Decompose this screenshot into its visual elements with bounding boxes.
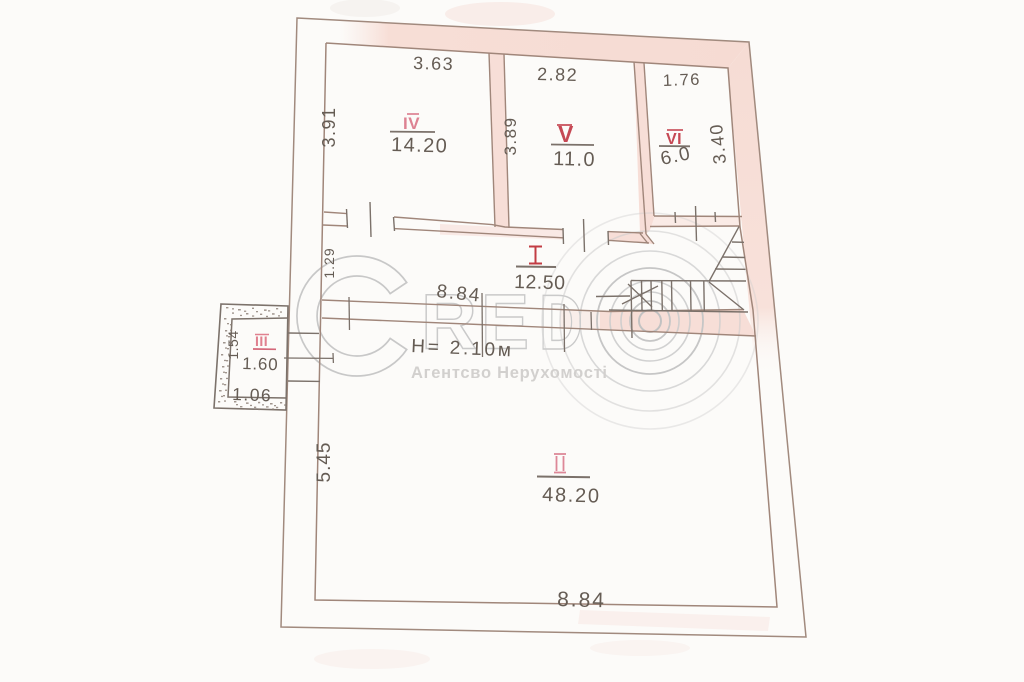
svg-text:14.20: 14.20 [391,134,449,157]
svg-text:3.63: 3.63 [413,53,455,74]
svg-text:1.29: 1.29 [321,247,337,278]
svg-text:Агентсво Нерухомості: Агентсво Нерухомості [411,364,607,382]
svg-text:1.60: 1.60 [242,354,279,374]
svg-text:III: III [255,333,268,349]
svg-text:1.54: 1.54 [225,330,241,359]
svg-text:12.50: 12.50 [514,271,566,294]
svg-text:2.82: 2.82 [537,64,579,85]
svg-text:H= 2.10м: H= 2.10м [411,336,514,361]
svg-text:3.91: 3.91 [319,106,339,147]
svg-text:3.40: 3.40 [706,122,730,165]
svg-text:1.76: 1.76 [663,71,702,90]
svg-text:IV: IV [403,114,420,133]
svg-text:11.0: 11.0 [553,148,596,171]
svg-text:8.84: 8.84 [557,588,606,612]
svg-text:48.20: 48.20 [542,484,601,508]
svg-text:1.06: 1.06 [232,384,273,405]
svg-text:3.89: 3.89 [501,116,520,155]
svg-text:5.45: 5.45 [314,442,335,483]
